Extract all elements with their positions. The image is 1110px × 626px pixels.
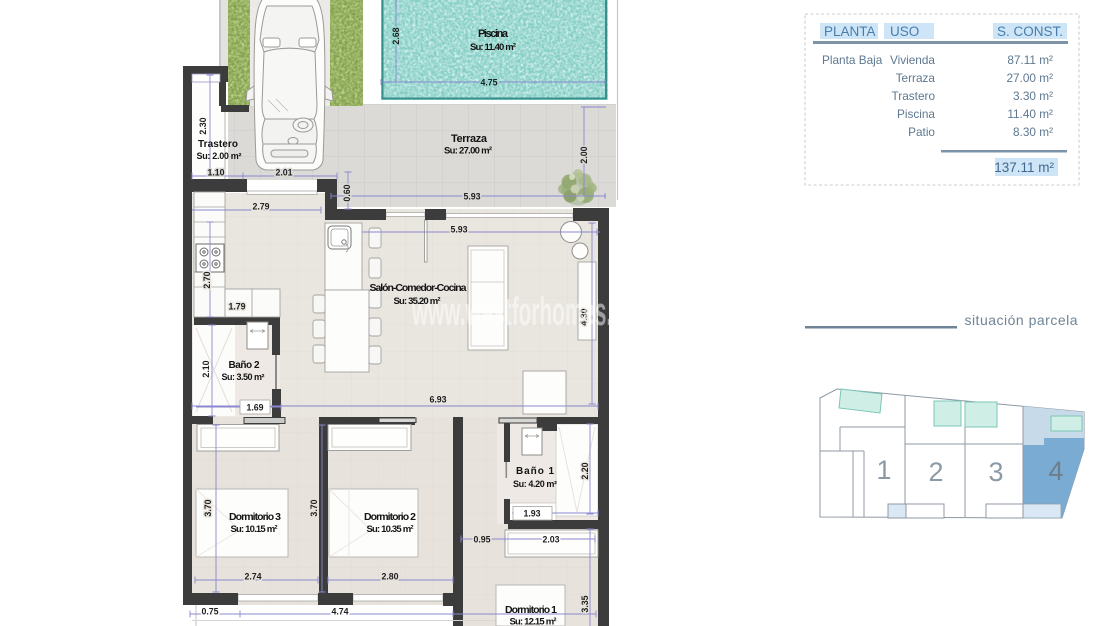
svg-text:3.70: 3.70 xyxy=(203,499,213,516)
svg-text:Su: 2.00 m²: Su: 2.00 m² xyxy=(197,151,242,161)
svg-text:3: 3 xyxy=(988,457,1003,487)
svg-text:1.79: 1.79 xyxy=(228,302,245,312)
svg-text:1.10: 1.10 xyxy=(207,168,224,178)
svg-text:Planta Baja: Planta Baja xyxy=(822,53,883,67)
svg-text:137.11 m²: 137.11 m² xyxy=(994,160,1054,175)
svg-text:Baño 1: Baño 1 xyxy=(516,466,554,477)
svg-text:87.11 m²: 87.11 m² xyxy=(1007,53,1053,67)
svg-text:6.93: 6.93 xyxy=(429,395,446,405)
svg-text:3.35: 3.35 xyxy=(580,595,590,612)
svg-text:Su: 3.50 m²: Su: 3.50 m² xyxy=(222,372,265,382)
svg-text:3.70: 3.70 xyxy=(309,499,319,516)
svg-text:2.79: 2.79 xyxy=(252,202,269,212)
svg-text:S. CONST.: S. CONST. xyxy=(997,24,1063,39)
svg-text:Trastero: Trastero xyxy=(198,139,238,150)
svg-text:Vivienda: Vivienda xyxy=(890,53,935,67)
svg-text:4.75: 4.75 xyxy=(480,78,497,88)
svg-text:Patio: Patio xyxy=(908,125,935,139)
svg-text:Terraza: Terraza xyxy=(896,71,936,85)
svg-text:2: 2 xyxy=(928,457,943,487)
svg-text:2.00: 2.00 xyxy=(579,146,589,163)
svg-text:2.70: 2.70 xyxy=(202,271,212,288)
svg-text:2.01: 2.01 xyxy=(275,168,292,178)
svg-text:5.93: 5.93 xyxy=(463,192,480,202)
svg-text:Dormitorio 3: Dormitorio 3 xyxy=(229,511,281,523)
svg-text:Su: 4.20 m²: Su: 4.20 m² xyxy=(513,479,557,489)
svg-text:0.75: 0.75 xyxy=(201,607,218,617)
svg-text:3.30 m²: 3.30 m² xyxy=(1013,89,1053,103)
svg-text:PLANTA: PLANTA xyxy=(824,24,876,39)
svg-text:1: 1 xyxy=(876,455,891,485)
svg-text:5.93: 5.93 xyxy=(450,225,467,235)
svg-text:1.93: 1.93 xyxy=(523,509,540,519)
svg-text:situación parcela: situación parcela xyxy=(964,312,1078,328)
svg-text:Piscina: Piscina xyxy=(478,28,509,40)
svg-text:Trastero: Trastero xyxy=(892,89,936,103)
svg-text:2.10: 2.10 xyxy=(201,360,211,377)
svg-text:Su: 11.40 m²: Su: 11.40 m² xyxy=(470,42,516,53)
svg-text:Baño 2: Baño 2 xyxy=(229,360,260,371)
svg-text:4.74: 4.74 xyxy=(331,607,348,617)
svg-text:Su: 12.15 m²: Su: 12.15 m² xyxy=(510,617,557,626)
svg-text:4: 4 xyxy=(1048,456,1063,486)
svg-text:Piscina: Piscina xyxy=(897,107,935,121)
svg-text:Terraza: Terraza xyxy=(451,133,488,145)
svg-text:11.40 m²: 11.40 m² xyxy=(1007,107,1053,121)
svg-text:2.74: 2.74 xyxy=(244,572,261,582)
svg-text:0.95: 0.95 xyxy=(473,535,490,545)
svg-text:0.60: 0.60 xyxy=(342,184,352,201)
svg-text:2.03: 2.03 xyxy=(542,535,559,545)
svg-text:2.68: 2.68 xyxy=(391,27,401,44)
svg-text:Dormitorio 2: Dormitorio 2 xyxy=(364,511,416,523)
svg-text:2.20: 2.20 xyxy=(580,462,590,479)
svg-text:www.westforhomes.c: www.westforhomes.c xyxy=(411,289,623,334)
svg-text:2.80: 2.80 xyxy=(381,572,398,582)
svg-text:Su: 10.35 m²: Su: 10.35 m² xyxy=(367,524,414,535)
svg-text:Dormitorio 1: Dormitorio 1 xyxy=(505,604,557,616)
svg-text:Su: 27.00 m²: Su: 27.00 m² xyxy=(444,146,492,157)
svg-text:USO: USO xyxy=(890,24,919,39)
svg-text:1.69: 1.69 xyxy=(246,403,263,413)
svg-text:2.30: 2.30 xyxy=(198,117,208,134)
svg-text:Su: 10.15 m²: Su: 10.15 m² xyxy=(231,524,278,535)
svg-text:8.30 m²: 8.30 m² xyxy=(1013,125,1053,139)
svg-text:27.00 m²: 27.00 m² xyxy=(1006,71,1053,85)
